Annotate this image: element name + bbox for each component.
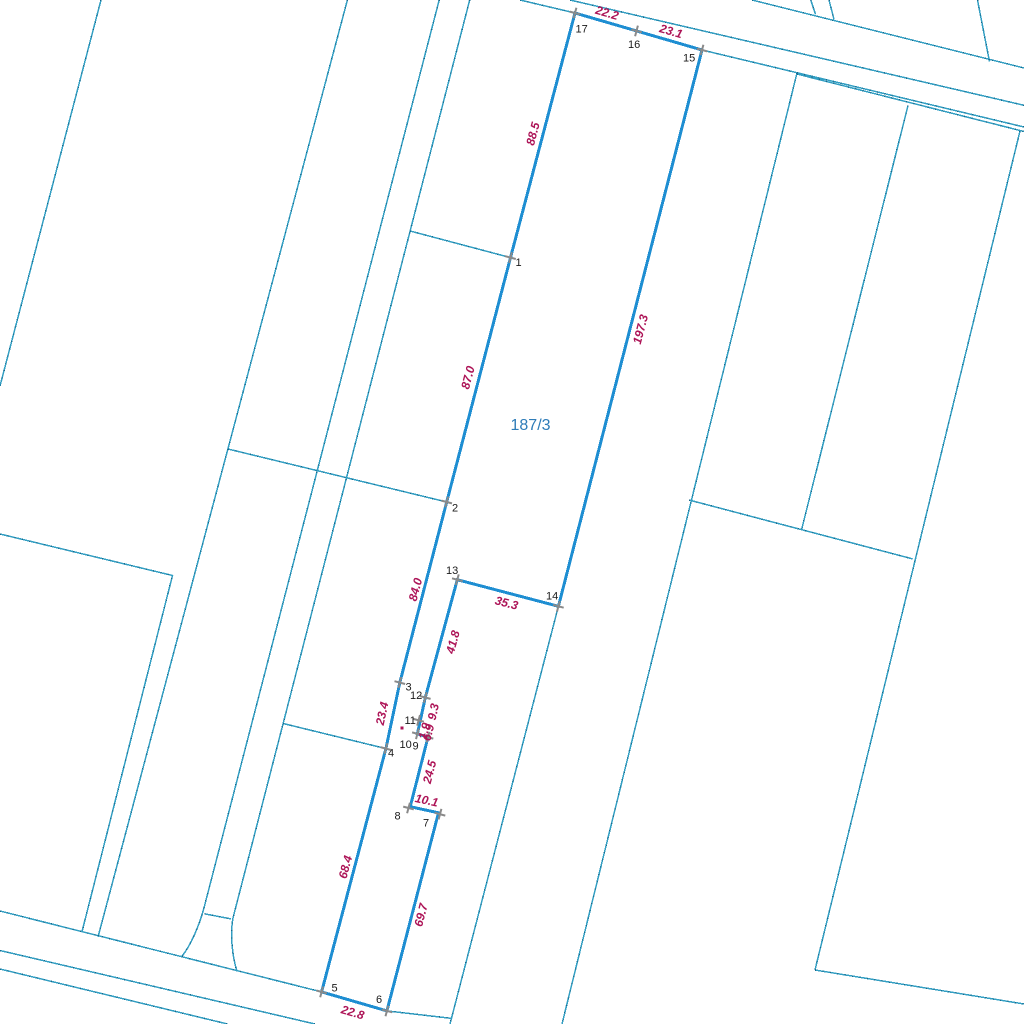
svg-text:2: 2 — [452, 503, 458, 515]
svg-text:17: 17 — [576, 24, 588, 36]
svg-text:187/3: 187/3 — [511, 417, 551, 434]
svg-text:6: 6 — [376, 994, 382, 1006]
svg-text:5: 5 — [332, 983, 338, 995]
svg-text:13: 13 — [446, 565, 458, 577]
svg-text:12: 12 — [410, 690, 422, 702]
svg-text:15: 15 — [683, 53, 695, 65]
svg-text:10: 10 — [400, 739, 412, 751]
svg-text:14: 14 — [546, 591, 558, 603]
svg-text:11: 11 — [405, 715, 416, 727]
svg-text:4: 4 — [388, 748, 394, 760]
svg-text:16: 16 — [628, 39, 640, 51]
svg-text:1: 1 — [516, 257, 522, 269]
svg-text:7: 7 — [423, 818, 429, 830]
svg-text:8: 8 — [395, 811, 401, 823]
svg-text:9: 9 — [413, 741, 419, 753]
